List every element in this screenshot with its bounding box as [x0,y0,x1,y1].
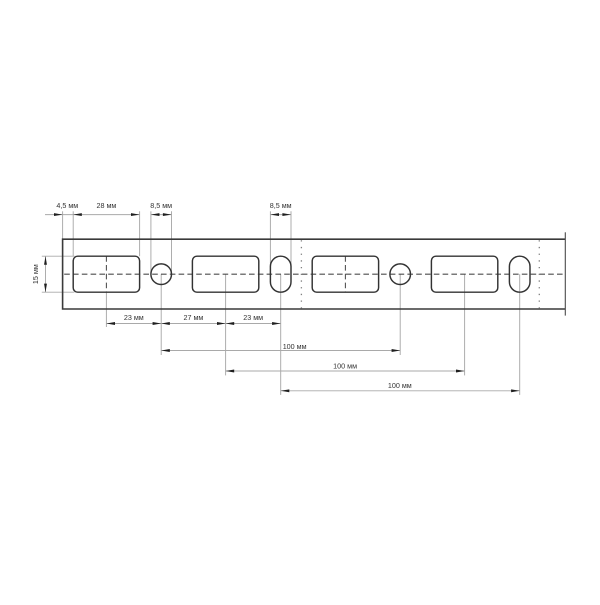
svg-text:100 мм: 100 мм [283,342,307,351]
svg-text:100 мм: 100 мм [333,361,357,370]
svg-text:27 мм: 27 мм [183,313,203,322]
svg-text:15 мм: 15 мм [31,264,40,284]
svg-text:23 мм: 23 мм [243,313,263,322]
svg-text:4,5 мм: 4,5 мм [56,201,78,210]
svg-text:23 мм: 23 мм [124,313,144,322]
svg-text:28 мм: 28 мм [96,201,116,210]
svg-text:100 мм: 100 мм [388,381,412,390]
svg-text:8,5 мм: 8,5 мм [150,201,172,210]
svg-text:8,5 мм: 8,5 мм [270,201,292,210]
